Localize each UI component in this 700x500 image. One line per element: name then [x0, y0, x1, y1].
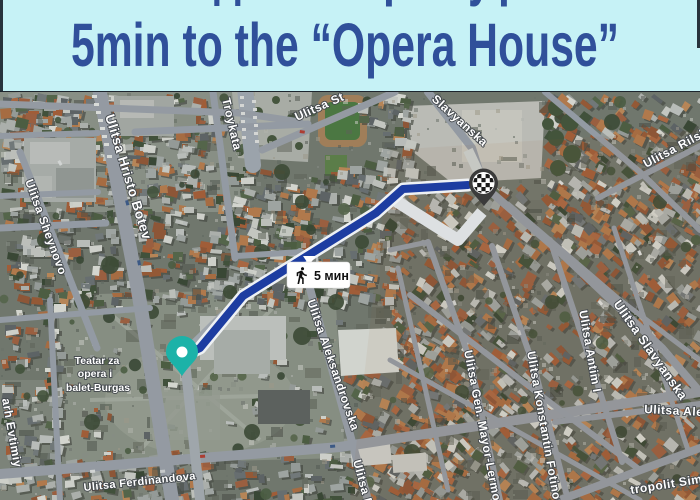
svg-text:Teatar za: Teatar za	[75, 355, 120, 367]
svg-text:balet-Burgas: balet-Burgas	[66, 382, 130, 394]
svg-text:opera i: opera i	[78, 368, 113, 380]
svg-text:5 мин: 5 мин	[314, 269, 349, 283]
